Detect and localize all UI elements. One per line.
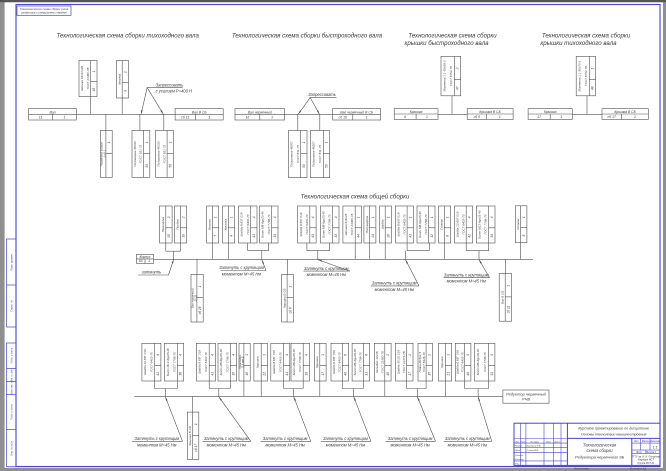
svg-text:45: 45 (92, 88, 96, 92)
svg-text:Технологическая схема сборки: Технологическая схема сборки (408, 32, 497, 39)
svg-text:1: 1 (198, 285, 202, 287)
svg-text:Вал В СБ: Вал В СБ (192, 110, 208, 114)
svg-text:1: 1 (366, 116, 368, 120)
svg-text:Подшипник 46207: Подшипник 46207 (290, 141, 294, 167)
svg-text:Штифт 10х36: Штифт 10х36 (375, 351, 379, 373)
svg-text:4: 4 (285, 354, 289, 356)
svg-text:Технологическая схема сборки б: Технологическая схема сборки быстроходно… (232, 32, 383, 39)
svg-text:1: 1 (194, 423, 198, 425)
svg-text:Болт М8-6gх25.40: Болт М8-6gх25.40 (322, 211, 326, 238)
svg-text:Затянуть с крутящим: Затянуть с крутящим (134, 436, 179, 441)
svg-text:4: 4 (232, 354, 236, 356)
svg-text:2: 2 (408, 354, 412, 357)
svg-text:17: 17 (321, 372, 325, 376)
svg-text:22: 22 (263, 372, 267, 377)
svg-text:Шайба 8.65Г 019: Шайба 8.65Г 019 (240, 212, 244, 236)
svg-text:моментом М=45 Нм: моментом М=45 Нм (447, 279, 486, 284)
svg-text:50: 50 (168, 164, 172, 168)
svg-text:35: 35 (427, 372, 431, 376)
svg-text:Болт М8-6gх25.40: Болт М8-6gх25.40 (219, 349, 223, 376)
svg-text:43: 43 (252, 234, 256, 238)
svg-text:26: 26 (387, 234, 391, 239)
svg-text:43: 43 (311, 234, 315, 238)
svg-text:Затянуть с крутящим: Затянуть с крутящим (372, 281, 417, 286)
svg-text:Затянуть с крутящим: Затянуть с крутящим (204, 436, 249, 441)
svg-text:Утв.: Утв. (515, 463, 520, 465)
svg-text:ГОСТ 6402-70: ГОСТ 6402-70 (461, 214, 465, 234)
svg-text:1: 1 (92, 70, 96, 72)
svg-text:4: 4 (490, 354, 494, 356)
svg-text:Крышка: Крышка (256, 356, 260, 368)
svg-text:4: 4 (252, 216, 256, 218)
svg-text:редуктора и инерционных переда: редуктора и инерционных передач (20, 11, 67, 15)
svg-text:Подп. и дата: Подп. и дата (11, 404, 14, 420)
svg-text:ГОСТ 7798-70: ГОСТ 7798-70 (424, 214, 428, 234)
svg-text:Справ. №: Справ. № (10, 300, 14, 312)
svg-text:ГОСТ 831-75: ГОСТ 831-75 (139, 144, 143, 163)
svg-text:Болт М12-6gх25.40: Болт М12-6gх25.40 (166, 348, 170, 376)
svg-text:Крышка: Крышка (410, 110, 423, 114)
svg-text:1 сб 1: 1 сб 1 (102, 150, 106, 158)
svg-text:4: 4 (273, 216, 277, 218)
svg-text:Группа МСТ-21: Группа МСТ-21 (637, 462, 654, 465)
svg-text:Редуктор червячный: Редуктор червячный (506, 391, 547, 396)
svg-text:Подшипник 46310: Подшипник 46310 (133, 141, 137, 167)
svg-text:Крышка: Крышка (315, 356, 319, 368)
svg-text:41: 41 (211, 372, 215, 376)
svg-text:Затянуть с крутящим: Затянуть с крутящим (444, 272, 489, 277)
svg-text:1: 1 (387, 216, 391, 218)
svg-text:Крышка В СБ: Крышка В СБ (283, 289, 287, 308)
svg-text:4: 4 (490, 216, 494, 218)
svg-text:1: 1 (302, 141, 306, 143)
svg-text:Пров.: Пров. (515, 450, 521, 452)
svg-text:19: 19 (182, 234, 186, 238)
svg-text:сб 16: сб 16 (339, 116, 347, 120)
svg-text:Вал червячный В СБ: Вал червячный В СБ (340, 110, 374, 114)
svg-text:Масса: Масса (642, 441, 650, 443)
svg-text:Шайба 8.65Г 019: Шайба 8.65Г 019 (272, 350, 276, 374)
svg-text:Инв. № подл.: Инв. № подл. (11, 440, 14, 456)
svg-text:1: 1 (522, 216, 526, 218)
svg-text:7: 7 (214, 235, 218, 237)
svg-text:сб 6: сб 6 (474, 115, 481, 119)
svg-text:моментом М=45 Нм: моментом М=45 Нм (448, 442, 487, 447)
svg-text:Втулка: Втулка (208, 219, 212, 230)
svg-text:сб 17: сб 17 (608, 115, 616, 119)
svg-text:крышки тихоходного вала: крышки тихоходного вала (540, 40, 617, 47)
svg-text:ГОСТ 8752-79: ГОСТ 8752-79 (449, 66, 453, 86)
svg-text:Шайба 12.65Г 019: Шайба 12.65Г 019 (143, 349, 147, 375)
svg-text:сб 17: сб 17 (194, 444, 198, 452)
svg-text:1: 1 (357, 216, 361, 218)
svg-text:2: 2 (167, 216, 171, 219)
svg-text:Дата: Дата (553, 441, 560, 443)
svg-text:4: 4 (156, 354, 160, 356)
svg-text:1: 1 (263, 354, 267, 356)
svg-text:Запрессовать: Запрессовать (308, 92, 336, 97)
svg-text:ГОСТ 7798-70: ГОСТ 7798-70 (484, 214, 488, 234)
svg-text:РЧВ: РЧВ (522, 397, 530, 402)
svg-text:Лит: Лит (633, 441, 639, 443)
svg-text:Технологическая схема сборки т: Технологическая схема сборки тихоходного… (57, 32, 200, 39)
svg-text:Полумуфта: Полумуфта (365, 216, 369, 234)
svg-text:Шайба 8.65Г 019: Шайба 8.65Г 019 (299, 212, 303, 236)
svg-text:Шайба 12.65Г 019: Шайба 12.65Г 019 (456, 211, 460, 237)
svg-text:Копировал: Копировал (574, 467, 589, 471)
svg-text:Инв. № дубл.: Инв. № дубл. (11, 368, 14, 382)
svg-text:24: 24 (371, 234, 375, 239)
svg-text:Затянуть с крутящим: Затянуть с крутящим (445, 436, 490, 441)
svg-text:Основы технологии машиностроен: Основы технологии машиностроения (581, 432, 647, 436)
svg-text:Прокладка: Прокладка (161, 217, 165, 233)
svg-text:моментом М=45 Нм: моментом М=45 Нм (307, 272, 346, 277)
svg-text:Н.контр.: Н.контр. (515, 459, 525, 461)
svg-text:Стакан: Стакан (440, 219, 444, 231)
svg-text:6: 6 (365, 354, 369, 356)
svg-text:8: 8 (446, 235, 450, 237)
svg-text:1: 1 (499, 115, 501, 119)
svg-text:Шпонка 16х10х36: Шпонка 16х10х36 (80, 66, 84, 91)
svg-text:ГОСТ 7798-70: ГОСТ 7798-70 (483, 352, 487, 372)
svg-text:Вал В СБ: Вал В СБ (500, 291, 504, 304)
svg-text:2: 2 (456, 67, 460, 70)
svg-text:33: 33 (334, 234, 338, 238)
svg-text:Санков В.В.: Санков В.В. (527, 450, 540, 452)
svg-text:с усилием Р=400 Н: с усилием Р=400 Н (156, 88, 192, 93)
svg-text:Запрессовать: Запрессовать (156, 82, 184, 87)
svg-text:Болт М8-6gх25.40: Болт М8-6gх25.40 (292, 349, 296, 376)
svg-text:31: 31 (490, 372, 494, 376)
svg-text:1: 1 (288, 285, 292, 287)
svg-text:1: 1 (426, 115, 428, 119)
svg-text:4: 4 (334, 216, 338, 218)
svg-text:ГОСТ 6402-70: ГОСТ 6402-70 (246, 214, 250, 234)
svg-text:ГОСТ 23360-78: ГОСТ 23360-78 (380, 351, 384, 373)
svg-text:Быстров Н.В.: Быстров Н.В. (527, 446, 542, 448)
svg-text:1: 1 (430, 216, 434, 218)
svg-text:16: 16 (245, 372, 249, 376)
svg-text:Листов 1: Листов 1 (645, 452, 657, 454)
svg-text:30: 30 (232, 372, 236, 376)
svg-text:4: 4 (311, 216, 315, 218)
svg-text:4: 4 (211, 354, 215, 356)
svg-text:моментом М=45 Нм: моментом М=45 Нм (207, 442, 246, 447)
svg-text:11: 11 (39, 116, 43, 120)
svg-text:ГОСТ 831-75: ГОСТ 831-75 (296, 145, 300, 164)
svg-text:47: 47 (456, 86, 460, 90)
svg-text:1: 1 (560, 115, 562, 119)
svg-text:2: 2 (427, 354, 431, 357)
svg-text:Вал: Вал (49, 110, 55, 114)
svg-text:53: 53 (139, 259, 143, 263)
svg-text:44: 44 (357, 234, 361, 238)
svg-text:41: 41 (285, 372, 289, 376)
svg-text:ГОСТ 23360-78: ГОСТ 23360-78 (86, 67, 90, 89)
svg-text:2: 2 (182, 216, 186, 219)
svg-text:ГОСТ 6402-70: ГОСТ 6402-70 (150, 352, 154, 372)
svg-text:Шайба: Шайба (381, 219, 385, 229)
svg-text:сб 16: сб 16 (198, 306, 202, 314)
svg-text:1: 1 (446, 216, 450, 218)
svg-text:Технологическая схема сборки: Технологическая схема сборки (542, 32, 631, 39)
svg-text:моментом М=45 Нм: моментом М=45 Нм (137, 442, 176, 447)
svg-text:40: 40 (344, 372, 348, 376)
svg-text:ГОСТ 23360-78: ГОСТ 23360-78 (350, 213, 354, 235)
svg-text:схема сборки: схема сборки (587, 448, 614, 453)
svg-text:Масштаб: Масштаб (650, 441, 661, 443)
svg-text:1: 1 (245, 354, 249, 356)
svg-text:1: 1 (634, 115, 636, 119)
svg-text:1: 1 (507, 285, 511, 287)
svg-text:ГОСТ 6402-70: ГОСТ 6402-70 (305, 214, 309, 234)
svg-text:Манжета 1.1-35х58-3: Манжета 1.1-35х58-3 (443, 60, 447, 91)
svg-text:37: 37 (408, 372, 412, 376)
svg-text:ГОСТ 831-75: ГОСТ 831-75 (318, 145, 322, 164)
svg-text:1: 1 (271, 116, 273, 120)
svg-text:Лист: Лист (635, 452, 642, 454)
svg-text:30: 30 (305, 372, 309, 376)
svg-text:4: 4 (305, 354, 309, 356)
svg-text:Технологические схемы сборки у: Технологические схемы сборки узлов (20, 7, 69, 11)
svg-text:сб 6: сб 6 (288, 307, 292, 313)
svg-text:20: 20 (167, 234, 171, 239)
svg-text:Болт М8-6gх25.40: Болт М8-6gх25.40 (418, 211, 422, 238)
svg-text:40: 40 (466, 372, 470, 376)
svg-text:1: 1 (145, 141, 149, 143)
svg-text:сб 11: сб 11 (181, 116, 189, 120)
svg-text:8: 8 (522, 234, 526, 236)
svg-text:Изм: Изм (515, 441, 519, 443)
svg-text:Вал червячный: Вал червячный (248, 110, 272, 114)
svg-text:Манжета 1.1-50х70-1: Манжета 1.1-50х70-1 (578, 60, 582, 91)
svg-text:моментом М=45 Нм: моментом М=45 Нм (222, 272, 261, 277)
svg-text:45: 45 (386, 372, 390, 376)
svg-text:4: 4 (230, 235, 234, 237)
svg-text:Затянуть с крутящим: Затянуть с крутящим (219, 265, 264, 270)
svg-text:В СБ: В СБ (193, 295, 197, 302)
svg-text:1: 1 (63, 116, 65, 120)
svg-text:Подшипник 46310: Подшипник 46310 (157, 141, 161, 167)
svg-text:Крышка В СБ: Крышка В СБ (479, 110, 501, 114)
svg-text:6: 6 (344, 354, 348, 356)
svg-text:ГОСТ 6402-70: ГОСТ 6402-70 (460, 352, 464, 372)
svg-text:Курсовое проектирование по дис: Курсовое проектирование по дисциплине (578, 427, 649, 431)
svg-text:ГОСТ 831-75: ГОСТ 831-75 (162, 144, 166, 163)
svg-text:2: 2 (386, 354, 390, 357)
svg-text:ГОСТ 6402-70: ГОСТ 6402-70 (278, 352, 282, 372)
svg-text:ГОСТ 6402-70: ГОСТ 6402-70 (338, 352, 342, 372)
svg-text:42: 42 (468, 234, 472, 238)
svg-text:1: 1 (325, 141, 329, 143)
svg-text:1: 1 (447, 354, 451, 356)
svg-text:Лист: Лист (520, 441, 526, 443)
svg-text:Крышка: Крышка (224, 219, 228, 231)
svg-text:1: 1 (148, 259, 150, 263)
svg-text:моментом М=45 Нм: моментом М=45 Нм (326, 442, 365, 447)
svg-text:Шайба 8.65Г 019: Шайба 8.65Г 019 (396, 212, 400, 236)
svg-text:31: 31 (365, 372, 369, 376)
svg-text:моментом М=45 Нм: моментом М=45 Нм (375, 287, 414, 292)
svg-text:ГОСТ 6402-70: ГОСТ 6402-70 (402, 214, 406, 234)
svg-text:Редуктора червячного 9Б: Редуктора червячного 9Б (575, 455, 625, 460)
svg-text:1: 1 (230, 216, 234, 218)
svg-text:Затянуть с крутящим: Затянуть с крутящим (263, 436, 308, 441)
svg-text:9: 9 (124, 90, 128, 92)
svg-text:17: 17 (537, 115, 541, 119)
svg-text:Болт М6-6gх18.40: Болт М6-6gх18.40 (476, 349, 480, 376)
svg-text:ГОСТ 7798-70: ГОСТ 7798-70 (225, 352, 229, 372)
svg-text:ГОСТ 7798-70: ГОСТ 7798-70 (267, 214, 271, 234)
svg-text:моментом М=45 Нм: моментом М=45 Нм (265, 442, 304, 447)
svg-text:сб 11: сб 11 (507, 305, 511, 313)
svg-text:Т.контр.: Т.контр. (515, 455, 524, 457)
svg-text:34: 34 (490, 234, 494, 238)
svg-text:1: 1 (168, 141, 172, 143)
svg-text:Крышка В СБ: Крышка В СБ (188, 426, 192, 445)
svg-text:50: 50 (302, 164, 306, 168)
svg-text:Перв. примен.: Перв. примен. (10, 253, 14, 271)
svg-text:43: 43 (408, 234, 412, 238)
svg-text:ГОСТ 6402-70: ГОСТ 6402-70 (204, 352, 208, 372)
svg-text:Стакан: Стакан (516, 218, 520, 230)
svg-text:затянуть: затянуть (141, 269, 162, 274)
svg-text:1: 1 (214, 216, 218, 218)
svg-text:Крышка В СБ: Крышка В СБ (614, 110, 636, 114)
svg-text:Крышка: Крышка (544, 110, 557, 114)
svg-text:ГОСТ 7798-70: ГОСТ 7798-70 (328, 214, 332, 234)
svg-text:50: 50 (325, 164, 329, 168)
svg-text:42: 42 (156, 372, 160, 376)
svg-text:Шайба 30.02.019: Шайба 30.02.019 (396, 350, 400, 374)
svg-text:ГОСТ 5916-70: ГОСТ 5916-70 (422, 352, 426, 372)
svg-text:Технологическая: Технологическая (583, 443, 617, 448)
svg-text:Технологическая схема общей сб: Технологическая схема общей сборки (301, 194, 410, 201)
svg-text:Затянуть с крутящим: Затянуть с крутящим (388, 436, 433, 441)
svg-text:36: 36 (179, 372, 183, 376)
svg-text:1: 1 (107, 141, 111, 143)
svg-text:крышки быстроходного вала: крышки быстроходного вала (404, 40, 489, 47)
svg-text:ГОСТ 7798-70: ГОСТ 7798-70 (298, 352, 302, 372)
svg-text:1: 1 (208, 116, 210, 120)
svg-text:1:1: 1:1 (653, 445, 658, 449)
svg-text:Подп. и дата: Подп. и дата (11, 347, 14, 363)
svg-text:Шайба 6.65Г 019: Шайба 6.65Г 019 (456, 350, 460, 374)
svg-text:Шпонка 6х6х25: Шпонка 6х6х25 (344, 213, 348, 235)
svg-text:48: 48 (591, 86, 595, 90)
svg-text:Подп.: Подп. (546, 440, 552, 443)
svg-text:ГОСТ 7798-70: ГОСТ 7798-70 (359, 352, 363, 372)
svg-text:0,5 мм Б: 0,5 мм Б (241, 356, 245, 367)
svg-text:4: 4 (468, 216, 472, 218)
svg-text:1: 1 (124, 71, 128, 73)
svg-text:Шайба 8.65Г 019: Шайба 8.65Г 019 (198, 350, 202, 374)
svg-text:Болт М12-6gх25.40: Болт М12-6gх25.40 (478, 210, 482, 238)
svg-text:Крышка: Крышка (440, 356, 444, 368)
svg-text:4: 4 (466, 354, 470, 356)
svg-text:Взам. инв. №: Взам. инв. № (11, 380, 14, 395)
svg-text:Разраб.: Разраб. (515, 446, 523, 448)
svg-text:Подшипник 46207: Подшипник 46207 (312, 141, 316, 167)
svg-text:1: 1 (408, 216, 412, 218)
svg-text:1: 1 (591, 67, 595, 69)
svg-text:ГОСТ 8752-79: ГОСТ 8752-79 (584, 66, 588, 86)
svg-text:1: 1 (371, 216, 375, 218)
svg-text:4: 4 (179, 354, 183, 356)
svg-text:№ докум.: № докум. (530, 440, 539, 443)
svg-text:1: 1 (321, 354, 325, 356)
svg-text:32: 32 (430, 234, 434, 238)
svg-text:ГОСТ 11371-78: ГОСТ 11371-78 (402, 351, 406, 373)
svg-text:16: 16 (246, 116, 250, 120)
svg-text:Болт М6-6gх18.40: Болт М6-6gх18.40 (353, 349, 357, 376)
svg-text:6: 6 (404, 115, 406, 119)
svg-text:Затянуть с крутящим: Затянуть с крутящим (323, 436, 368, 441)
svg-text:50: 50 (145, 164, 149, 168)
svg-text:моментом М=45 Нм: моментом М=45 Нм (390, 442, 429, 447)
svg-text:ГОСТ 7798-70: ГОСТ 7798-70 (172, 352, 176, 372)
svg-text:Формат А1: Формат А1 (630, 467, 647, 471)
svg-text:Пробка: Пробка (176, 219, 180, 230)
svg-text:Шайба 6.65Г 019: Шайба 6.65Г 019 (332, 350, 336, 374)
svg-text:21: 21 (447, 372, 451, 377)
svg-text:Втулка: Втулка (117, 73, 121, 84)
svg-text:33: 33 (273, 234, 277, 238)
svg-text:Болт М8-6gх25.40: Болт М8-6gх25.40 (261, 211, 265, 238)
